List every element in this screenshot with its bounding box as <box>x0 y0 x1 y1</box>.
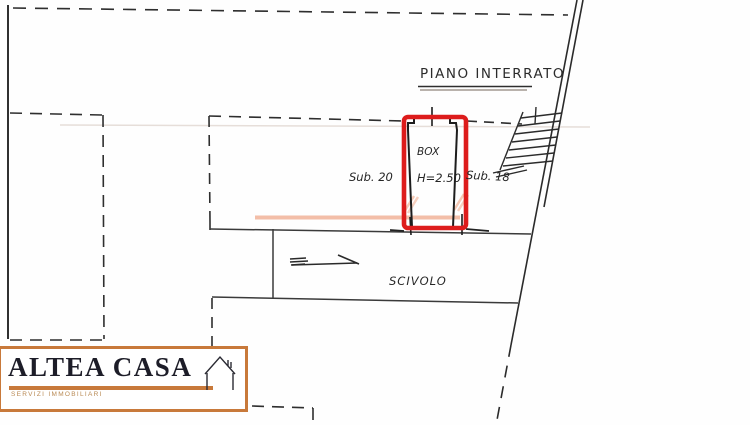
box-height-label: H=2.50 <box>417 171 461 185</box>
house-outline-icon <box>202 353 242 395</box>
diagonal-boundary-line <box>497 0 583 420</box>
logo-underline <box>9 386 213 390</box>
title-underline <box>418 87 532 91</box>
sub-20-label: Sub. 20 <box>349 170 393 184</box>
watermark-lines <box>60 125 590 220</box>
floor-plan-scan: PIANO INTERRATO Sub. 20 BOX H=2.50 Sub. … <box>0 0 750 425</box>
sub-18-label: Sub. 18 <box>466 168 511 184</box>
ramp-label: SCIVOLO <box>389 274 447 288</box>
left-dashed-parcel <box>10 113 104 340</box>
agency-logo: ALTEA CASA SERVIZI IMMOBILIARI <box>0 346 248 412</box>
floor-title: PIANO INTERRATO <box>420 66 565 82</box>
agency-name: ALTEA CASA <box>8 352 192 383</box>
garage-stairs-dashed-line <box>467 121 522 124</box>
top-boundary-dashed-line <box>13 8 568 15</box>
bottom-dashed-line <box>252 406 313 425</box>
ramp-direction-arrow <box>290 255 359 265</box>
agency-tagline: SERVIZI IMMOBILIARI <box>11 391 103 398</box>
ramp-walls <box>210 229 531 303</box>
box-label: BOX <box>417 146 439 158</box>
